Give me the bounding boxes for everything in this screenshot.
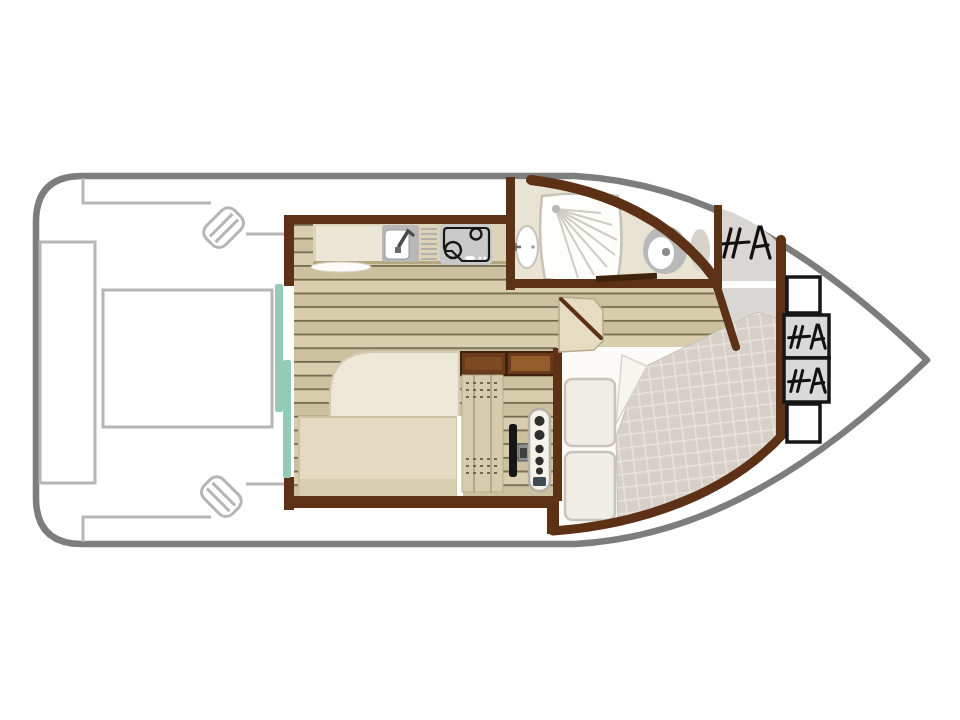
- stove-knob: [484, 257, 487, 260]
- pillow: [565, 379, 615, 446]
- basin-drain: [531, 245, 535, 249]
- wall-saloon-bottom: [284, 496, 557, 508]
- sliding-door-pane-inner: [283, 360, 291, 478]
- storage-cabinet-panel: [465, 357, 502, 370]
- wall-entry-upper: [284, 215, 294, 286]
- bow-locker-box: [787, 277, 820, 313]
- cabin-door: [559, 297, 603, 352]
- bow-locker-box: [787, 404, 820, 442]
- sofa-bench-front: [300, 479, 456, 496]
- wall-bathroom-left: [506, 177, 515, 290]
- sink-faucet-base: [395, 247, 401, 253]
- kitchen-cupboard: [316, 226, 382, 262]
- dish: [311, 262, 371, 272]
- helm-seat: [462, 375, 503, 492]
- toilet-bowl: [648, 237, 674, 269]
- panel-screen: [533, 477, 546, 486]
- floor-plan: [0, 0, 960, 720]
- storage-cabinet-panel: [511, 356, 550, 371]
- stove-knob: [479, 257, 482, 260]
- pillow: [565, 452, 615, 520]
- steering-hub-core: [520, 448, 527, 458]
- aft-table: [103, 290, 272, 427]
- wall-saloon-right: [553, 348, 562, 501]
- boat-floor-plan-page: [0, 0, 960, 720]
- drainboard: [421, 229, 437, 259]
- stove-knob-strip: [465, 256, 475, 260]
- sliding-door-pane-outer: [275, 284, 283, 412]
- toilet-drain: [662, 248, 670, 256]
- aft-bench: [40, 242, 95, 483]
- shower-head: [552, 205, 560, 213]
- wall-galley-top: [284, 215, 512, 224]
- steering-wheel: [509, 424, 517, 477]
